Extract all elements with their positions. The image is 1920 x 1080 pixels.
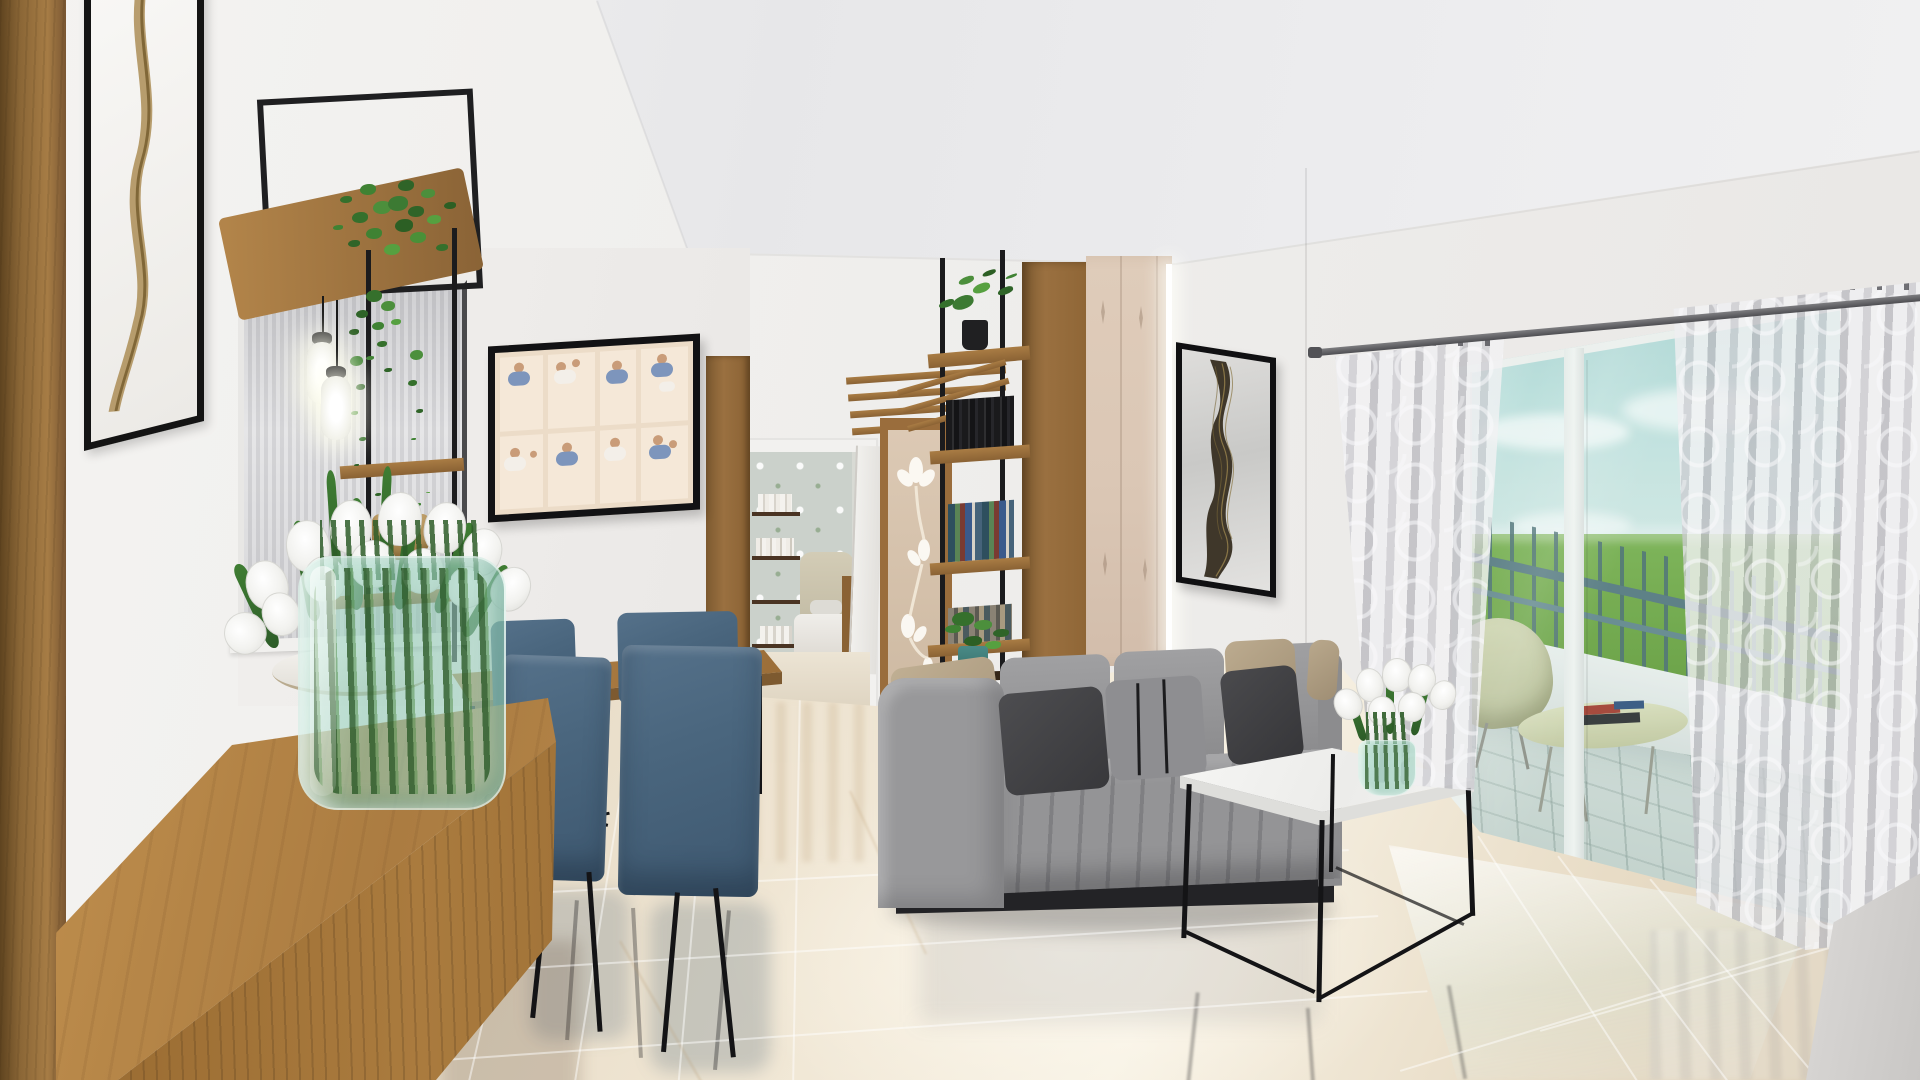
- gold-brushstroke: [84, 0, 190, 437]
- bookshelf-plant-pot: [962, 320, 988, 350]
- left-wardrobe-edge-grain: [0, 0, 66, 1080]
- abstract-art-dark: [1176, 342, 1276, 598]
- pothos-strand-left: [350, 356, 363, 366]
- coffee-table-rail: [1185, 930, 1315, 994]
- bed-pillow: [810, 600, 842, 615]
- pendant-lamp-2: [321, 376, 351, 440]
- pothos-strand-right: [410, 350, 423, 360]
- console-plant: [952, 612, 974, 626]
- sideboard-bouquet: [180, 440, 560, 840]
- chair-leg-reflection: [631, 908, 643, 1058]
- photo-cell: [548, 352, 595, 428]
- coffee-table-rail: [1319, 911, 1475, 1000]
- coffee-table-bouquet: [1310, 640, 1470, 810]
- bookshelf-plant: [951, 293, 976, 312]
- photo-cell: [600, 428, 635, 504]
- curtain-rod-finial: [1308, 347, 1322, 358]
- glass-vase-small: [1358, 740, 1416, 796]
- coffee-table-leg: [1181, 784, 1191, 938]
- pothos-cluster: [388, 196, 408, 211]
- photo-cell: [600, 349, 635, 425]
- interior-render: [0, 0, 1920, 1080]
- shelf-books: [760, 626, 792, 644]
- photo-cell: [641, 425, 688, 501]
- shelf-books: [758, 494, 792, 512]
- dark-ribbon: [1182, 349, 1270, 591]
- coffee-table-leg: [1316, 820, 1324, 1002]
- sheer-curtain-right: [1666, 282, 1920, 950]
- books-color-row: [948, 500, 1014, 563]
- pendant-wire-2: [336, 300, 338, 370]
- glass-vase-large: [298, 556, 506, 810]
- coffee-table-rail: [1335, 866, 1464, 926]
- bookshelf-side-panel: [1022, 262, 1088, 692]
- dining-chair-near-right: [618, 645, 762, 897]
- pendant-wire-1: [322, 296, 324, 336]
- pillow-dark-left: [998, 686, 1110, 797]
- bookshelf-rail-left: [940, 258, 945, 694]
- hallway-reflection: [750, 702, 880, 862]
- shelf-books: [756, 538, 794, 556]
- led-strip: [1166, 264, 1172, 656]
- wall-corner-line: [1305, 168, 1307, 646]
- photo-cell: [641, 346, 688, 422]
- pothos-cluster-low: [366, 290, 382, 302]
- sofa-left-arm: [878, 678, 1004, 908]
- photo-cell: [500, 355, 543, 431]
- abstract-art-gold: [84, 0, 204, 451]
- beige-panel-wall: [1086, 256, 1172, 666]
